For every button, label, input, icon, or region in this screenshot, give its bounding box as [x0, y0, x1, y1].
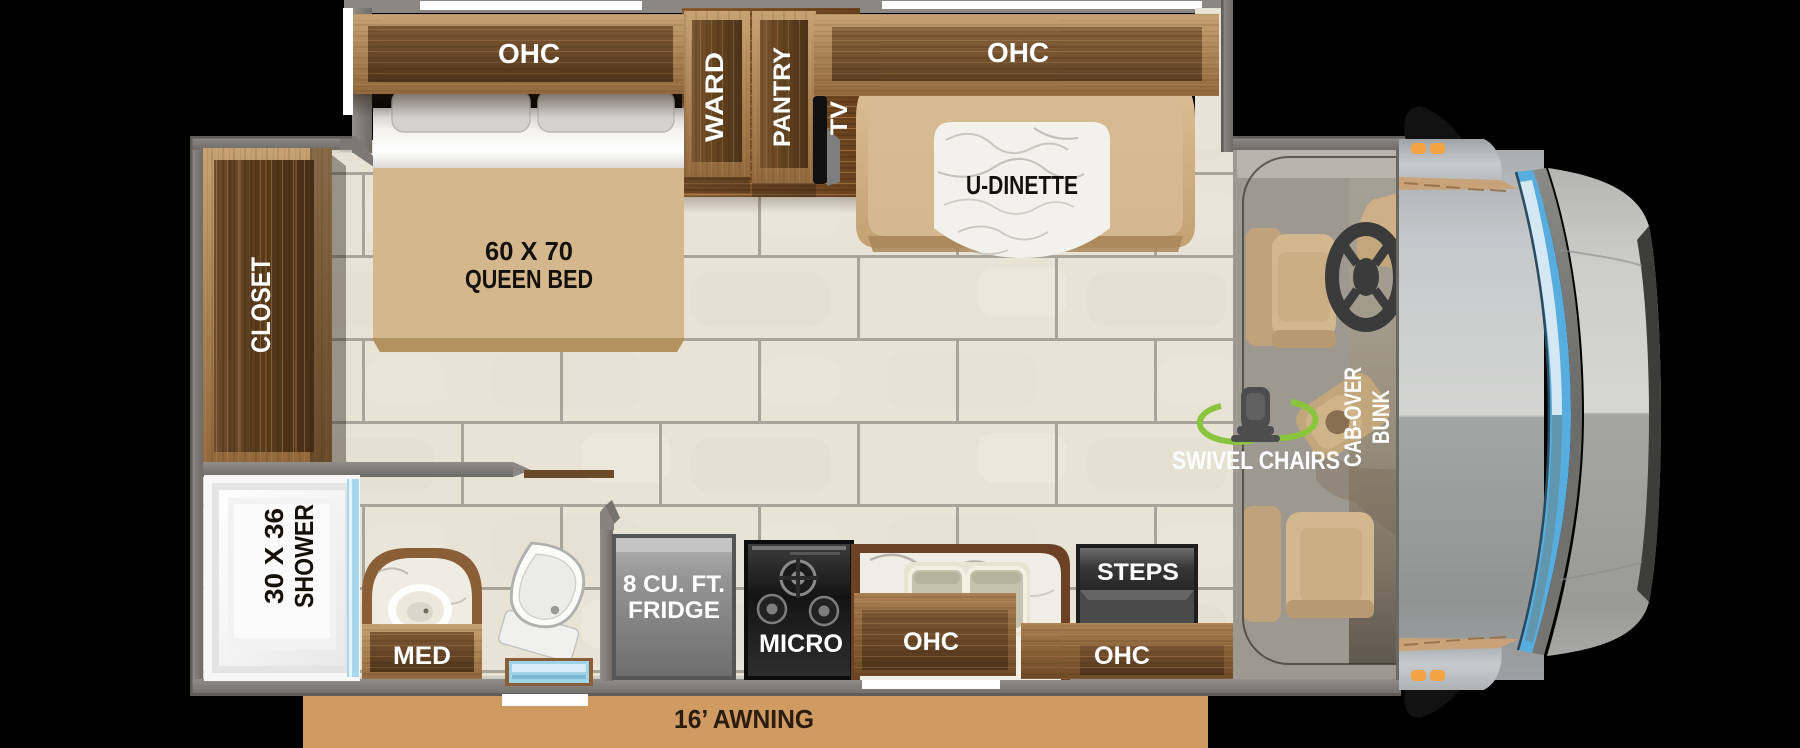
- svg-text:CLOSET: CLOSET: [246, 257, 276, 353]
- svg-text:WARD: WARD: [701, 52, 729, 142]
- svg-text:MED: MED: [393, 642, 451, 670]
- svg-text:OHC: OHC: [498, 38, 560, 69]
- svg-text:8 CU. FT.: 8 CU. FT.: [623, 571, 725, 598]
- svg-text:CAB-OVER: CAB-OVER: [1340, 367, 1367, 467]
- svg-text:BUNK: BUNK: [1368, 389, 1395, 444]
- svg-text:30 X 36: 30 X 36: [259, 508, 289, 604]
- svg-text:SWIVEL CHAIRS: SWIVEL CHAIRS: [1172, 447, 1340, 475]
- svg-text:OHC: OHC: [1094, 642, 1150, 670]
- svg-text:MICRO: MICRO: [759, 630, 843, 658]
- svg-text:FRIDGE: FRIDGE: [628, 597, 720, 624]
- svg-text:16’ AWNING: 16’ AWNING: [674, 704, 814, 734]
- svg-text:STEPS: STEPS: [1097, 559, 1179, 586]
- svg-text:SHOWER: SHOWER: [289, 504, 319, 608]
- svg-text:U-DINETTE: U-DINETTE: [966, 170, 1078, 200]
- svg-text:OHC: OHC: [903, 628, 959, 656]
- svg-text:60 X 70: 60 X 70: [485, 236, 573, 266]
- svg-text:OHC: OHC: [987, 37, 1049, 68]
- svg-text:PANTRY: PANTRY: [769, 47, 796, 147]
- svg-text:TV: TV: [826, 101, 853, 135]
- svg-text:QUEEN BED: QUEEN BED: [465, 264, 593, 294]
